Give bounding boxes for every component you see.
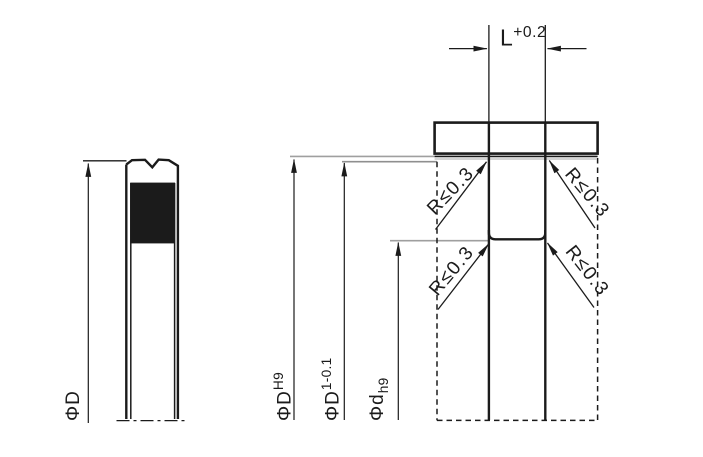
label-groove-root-diameter: Φdh9 [368, 377, 390, 421]
groove-width-tolerance: +0.2 [513, 24, 546, 41]
drawing-geometry [0, 0, 703, 457]
housing-plate [435, 123, 598, 157]
bore-label-tolerance: H9 [271, 372, 286, 390]
root-label-tolerance: h9 [376, 377, 391, 393]
seal-elastomer-core [130, 183, 175, 244]
seat-label-tolerance: 1-0.1 [319, 357, 334, 390]
od-label-text: ΦD [63, 390, 84, 421]
groove-width-base: L [500, 25, 513, 51]
label-groove-width: L+0.2 [500, 25, 546, 50]
label-bore-diameter: ΦDH9 [272, 372, 294, 421]
label-seal-outer-diameter: ΦD [64, 390, 83, 421]
seat-label-base: ΦD [322, 390, 343, 421]
root-label-base: Φd [367, 393, 388, 421]
bore-label-base: ΦD [274, 390, 295, 421]
groove-outline [489, 25, 545, 420]
seal-groove-technical-drawing: ΦD ΦDH9 ΦD1-0.1 Φdh9 L+0.2 R≤0.3 R≤0.3 R… [0, 0, 703, 457]
label-seal-seat-diameter: ΦD1-0.1 [320, 357, 342, 421]
